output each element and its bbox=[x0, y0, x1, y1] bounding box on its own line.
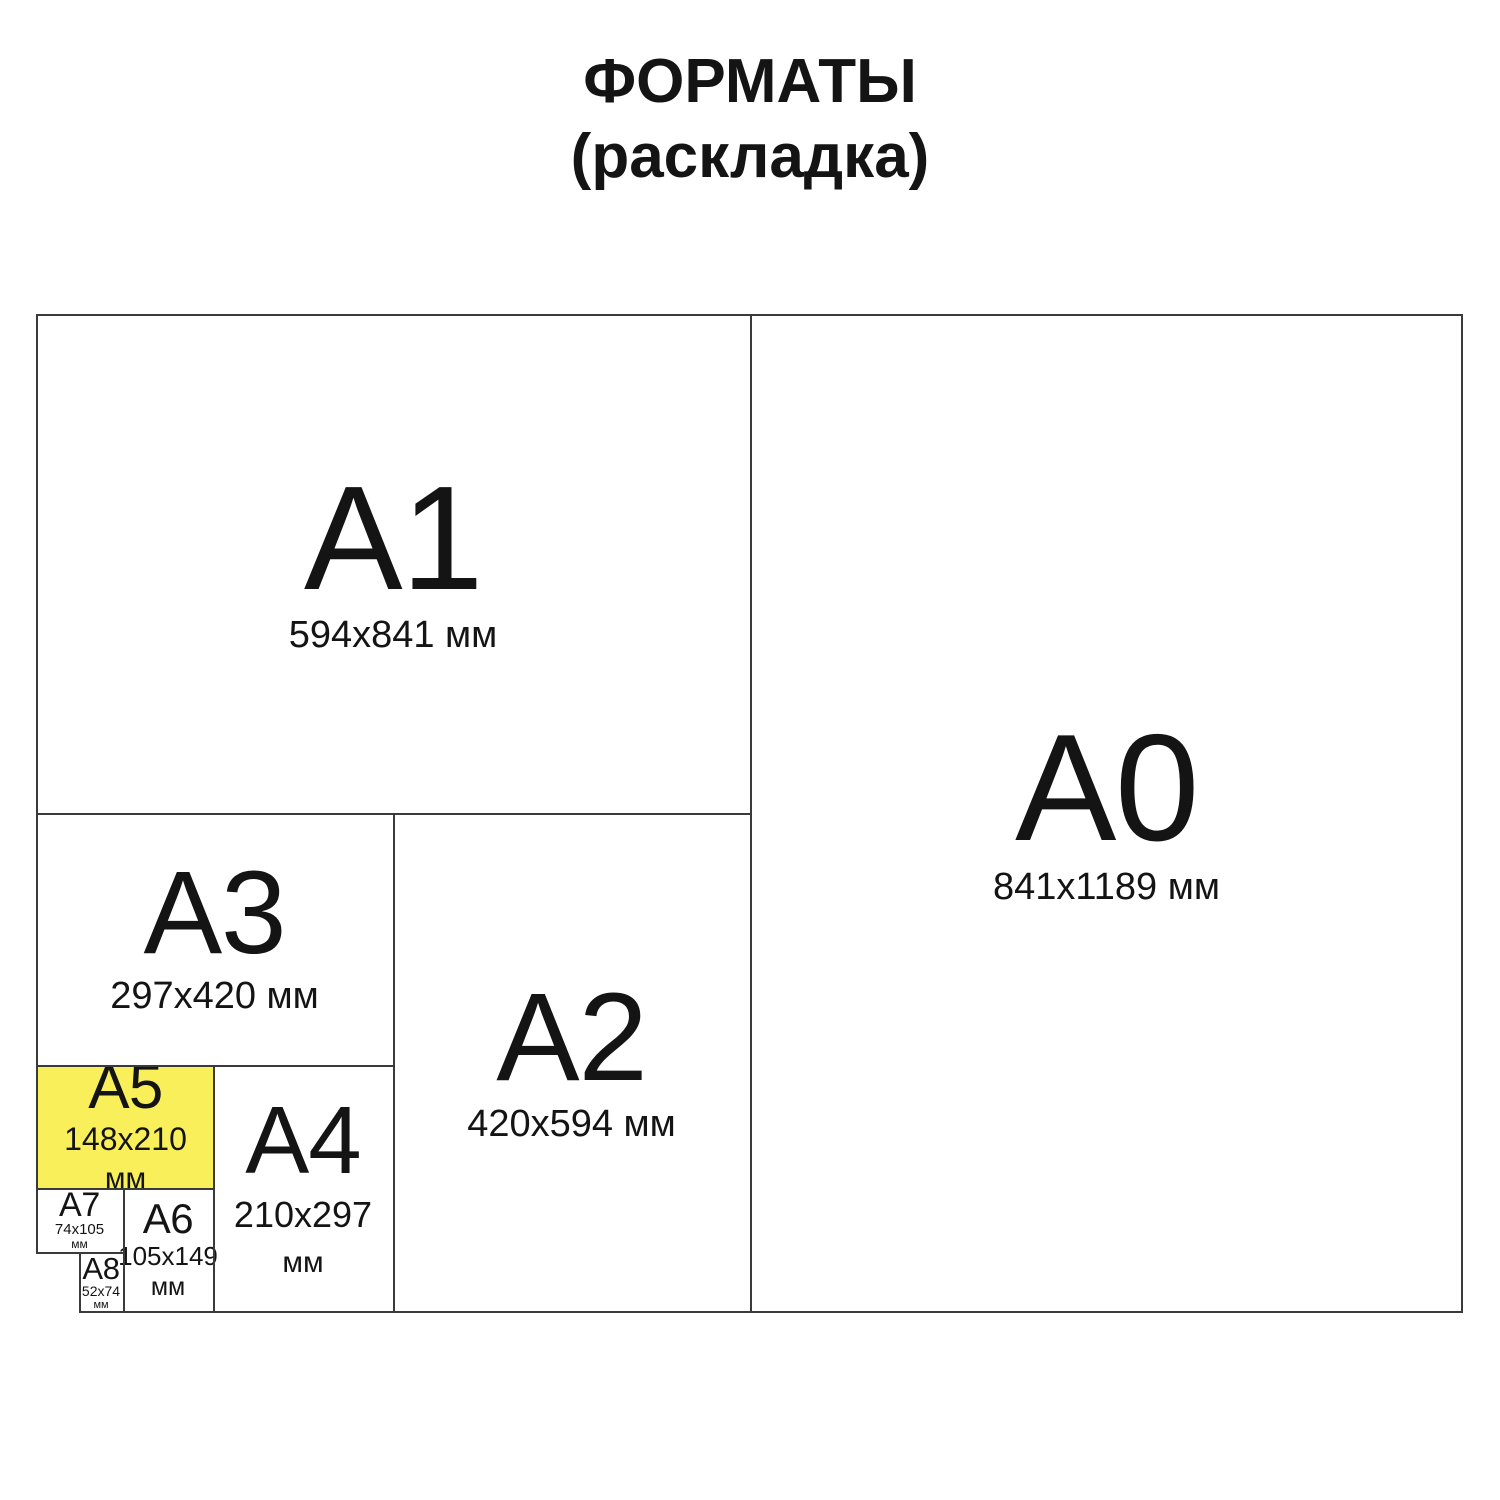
format-a2-dimensions: 420x594 мм bbox=[467, 1100, 676, 1149]
format-box-a7: A7 74x105 мм bbox=[36, 1188, 123, 1252]
title-line-2: (раскладка) bbox=[0, 119, 1500, 194]
format-box-a8: A8 52x74 мм bbox=[79, 1252, 123, 1313]
format-box-a6: A6 105x149 мм bbox=[123, 1188, 213, 1313]
format-a4-label: A4 bbox=[245, 1094, 361, 1188]
format-a4-unit: мм bbox=[282, 1242, 323, 1284]
format-a5-label: A5 bbox=[88, 1058, 163, 1119]
format-box-a0: A0 841x1189 мм bbox=[750, 314, 1463, 1313]
page: ФОРМАТЫ (раскладка) A1 594x841 мм A0 841… bbox=[0, 0, 1500, 1500]
title-line-1: ФОРМАТЫ bbox=[0, 44, 1500, 119]
format-a6-label: A6 bbox=[143, 1198, 194, 1240]
format-a4-dimensions: 210x297 bbox=[234, 1188, 372, 1242]
format-a8-label: A8 bbox=[82, 1254, 119, 1283]
format-box-a2: A2 420x594 мм bbox=[393, 813, 750, 1313]
format-a3-label: A3 bbox=[144, 856, 286, 972]
format-a0-label: A0 bbox=[1015, 714, 1198, 863]
format-a7-dimensions: 74x105 bbox=[55, 1221, 104, 1238]
format-a6-unit: мм bbox=[151, 1272, 185, 1303]
format-a1-label: A1 bbox=[304, 466, 482, 611]
format-a2-label: A2 bbox=[496, 977, 646, 1100]
format-box-a4: A4 210x297 мм bbox=[213, 1065, 393, 1313]
format-a7-unit: мм bbox=[71, 1238, 88, 1251]
format-a8-dimensions: 52x74 bbox=[82, 1283, 120, 1299]
page-title: ФОРМАТЫ (раскладка) bbox=[0, 44, 1500, 194]
format-box-a5-highlighted: A5 148x210 мм bbox=[36, 1065, 215, 1190]
format-a1-dimensions: 594x841 мм bbox=[289, 611, 498, 660]
format-a6-dimensions: 105x149 bbox=[118, 1240, 218, 1273]
format-a0-dimensions: 841x1189 мм bbox=[993, 863, 1220, 912]
format-a8-unit: мм bbox=[93, 1299, 108, 1311]
format-a7-label: A7 bbox=[59, 1189, 100, 1221]
format-a3-dimensions: 297x420 мм bbox=[110, 972, 319, 1021]
format-box-a1: A1 594x841 мм bbox=[36, 314, 750, 813]
format-box-a3: A3 297x420 мм bbox=[36, 813, 393, 1065]
format-a5-dimensions: 148x210 bbox=[64, 1119, 187, 1161]
